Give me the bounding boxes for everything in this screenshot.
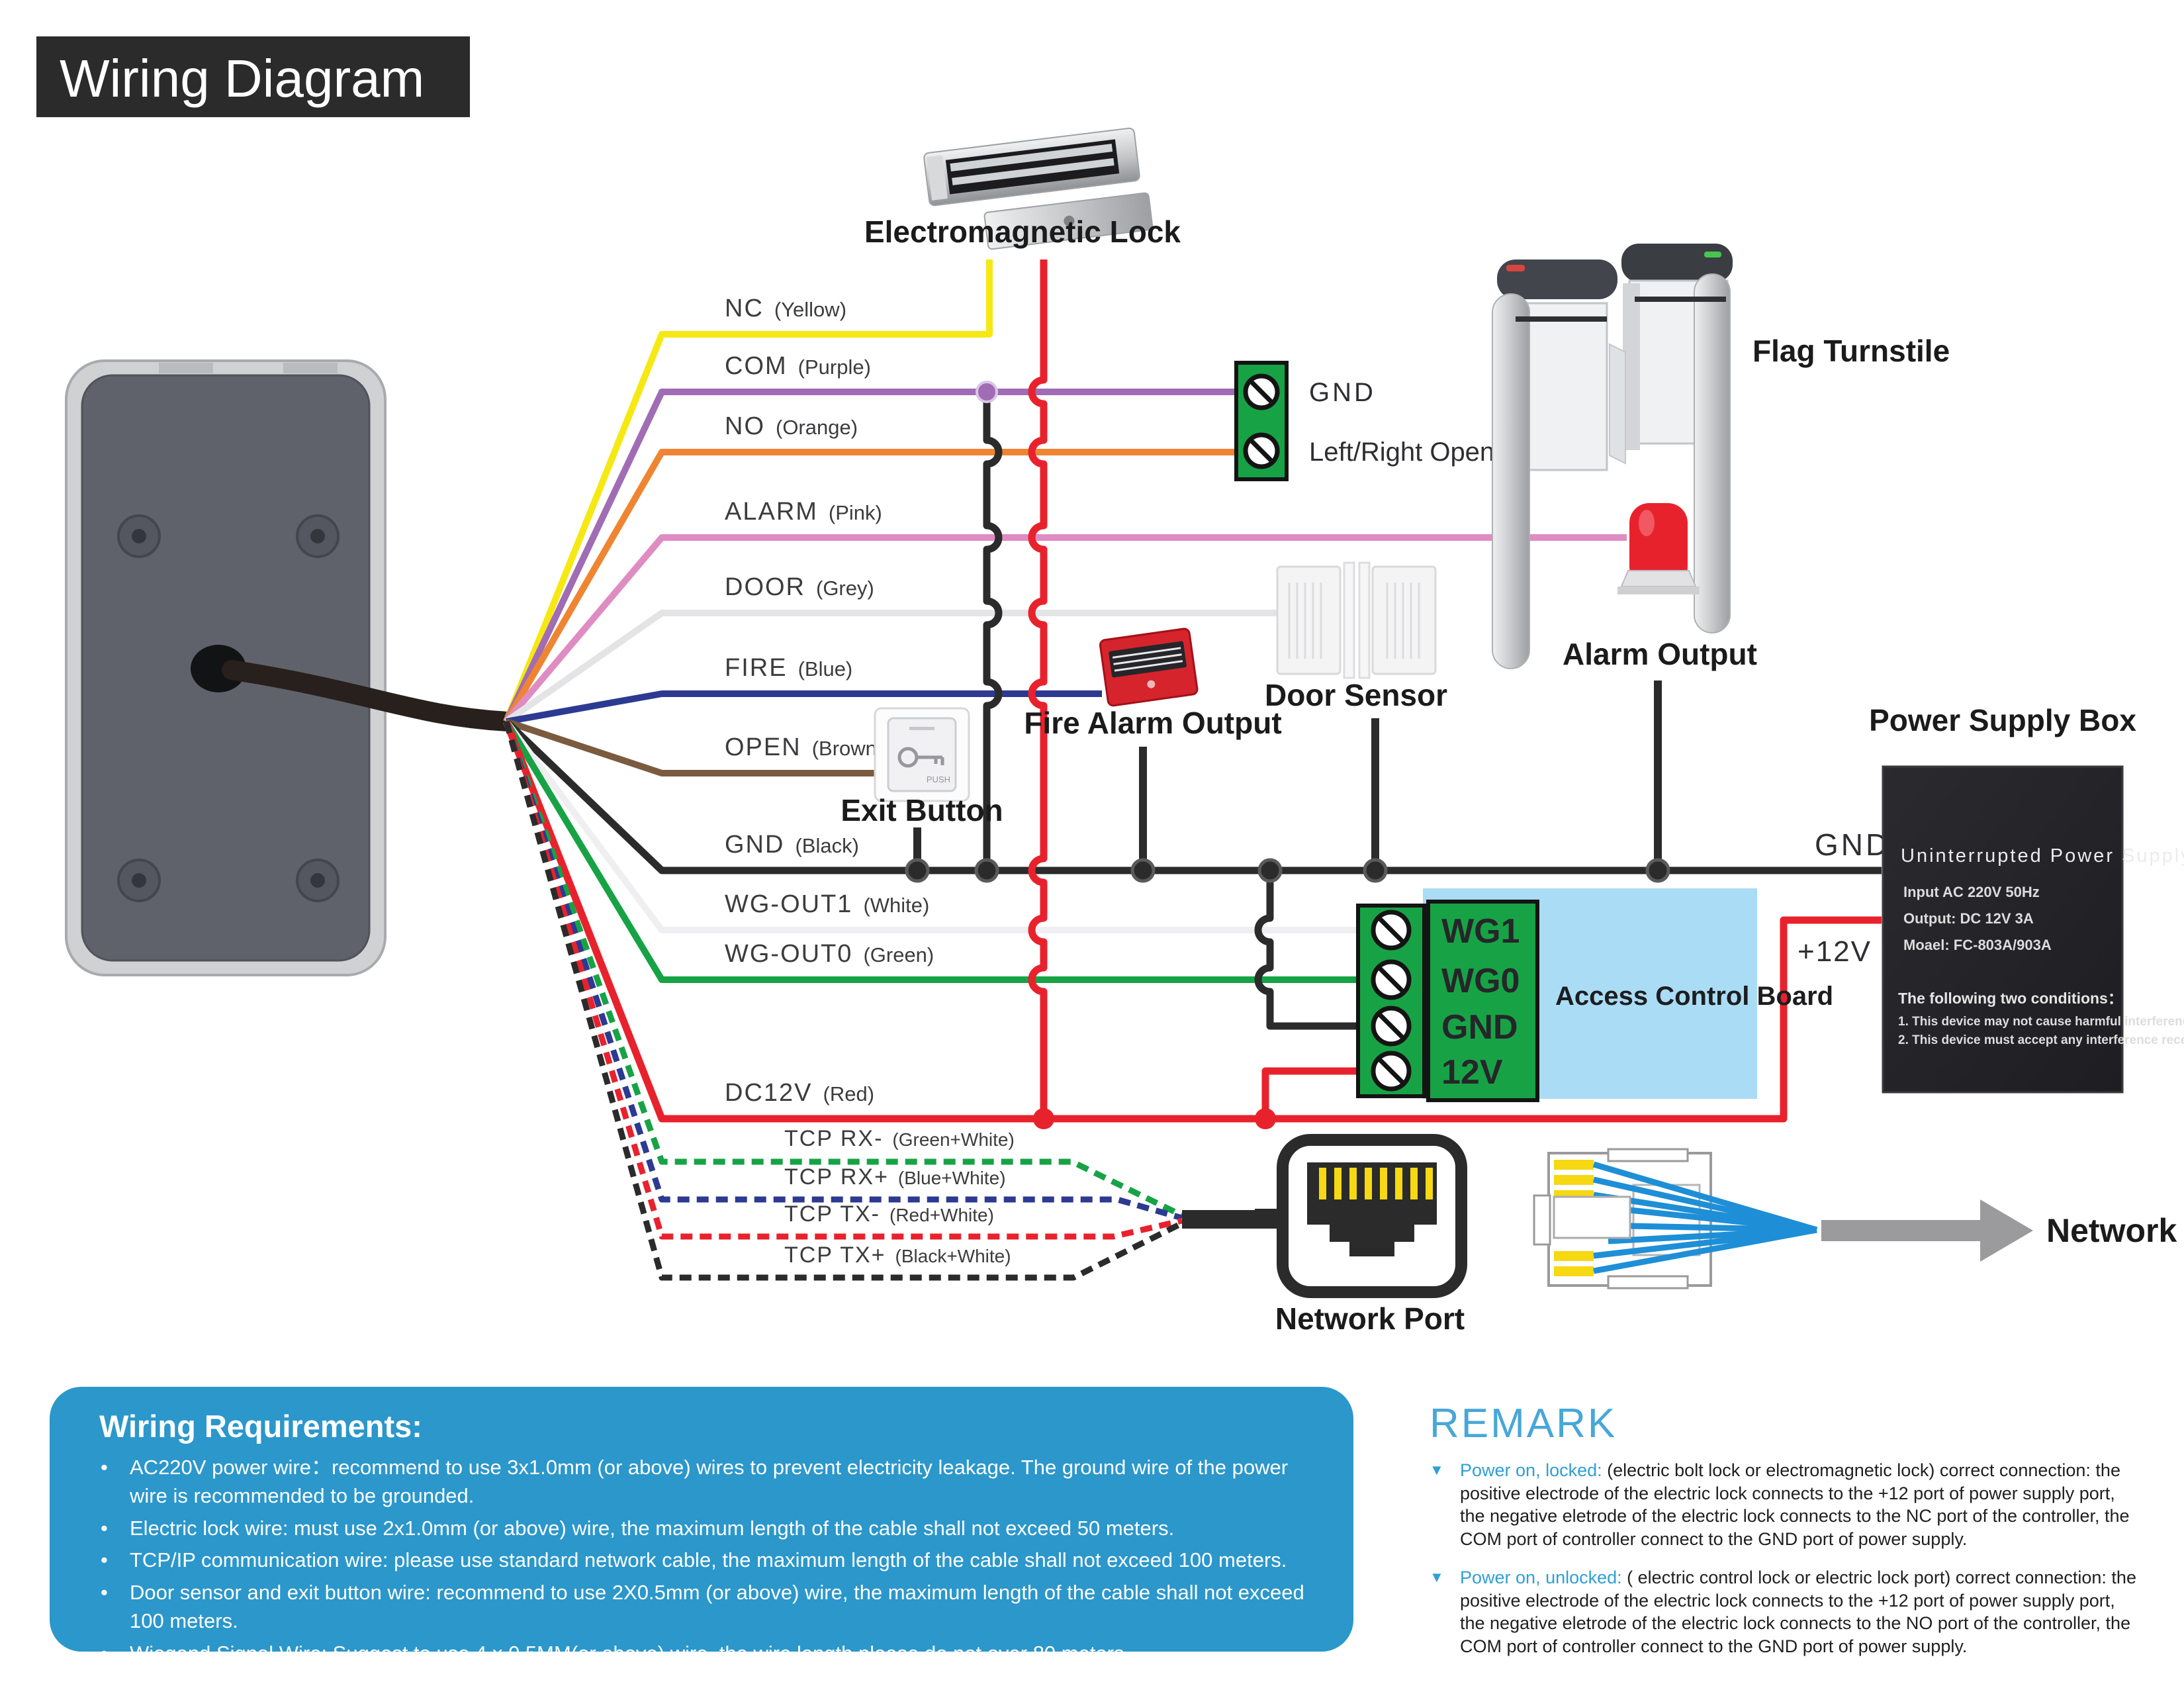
psu-model: Moael: FC-803A/903A [1903, 937, 2052, 953]
wire-label-nc: NC [725, 295, 764, 322]
fire-alarm-graphic: Fire Alarm Output [1024, 628, 1281, 740]
board-terminal-wg0: WG0 [1441, 962, 1520, 1000]
power-supply-box-label: Power Supply Box [1869, 703, 2136, 737]
psu-condition-2: 2. This device must accept any interfere… [1898, 1033, 2184, 1047]
board-terminal-12v: 12V [1441, 1053, 1503, 1092]
junction-dc12v-board [1255, 1108, 1276, 1129]
exit-button-label: Exit Button [841, 793, 1003, 827]
wire-fire [506, 694, 1102, 722]
access-control-board-label: Access Control Board [1555, 982, 1833, 1011]
door-sensor-label: Door Sensor [1265, 678, 1447, 712]
network-arrow-shaft [1821, 1220, 1980, 1241]
page-title: Wiring Diagram [60, 49, 424, 108]
svg-text:GND(Black): GND(Black) [725, 831, 859, 859]
requirement-item: Wiegand Signal Wire: Suggest to use 4 x … [126, 1640, 1314, 1668]
rj45-connector-graphic: Network [1534, 1149, 2177, 1288]
remark-lead: Power on, locked: [1460, 1460, 1602, 1480]
rj45-nose [1554, 1197, 1630, 1238]
junction-com [977, 382, 997, 402]
wire-12v-to-board [1265, 1071, 1358, 1119]
door-sensor-graphic: Door Sensor [1265, 563, 1447, 712]
fire-alarm-label: Fire Alarm Output [1024, 706, 1281, 740]
wire-gnd [506, 722, 1882, 870]
page-title-block: Wiring Diagram [36, 36, 470, 117]
svg-text:TCP TX-(Red+White): TCP TX-(Red+White) [784, 1201, 994, 1227]
electromagnetic-lock-label: Electromagnetic Lock [864, 214, 1181, 249]
flag-turnstile-graphic: Flag Turnstile [1492, 244, 1950, 669]
wire-label-wgout0: WG-OUT0 [725, 940, 852, 968]
wire-label-com: COM [725, 352, 788, 380]
push-label: PUSH [927, 774, 950, 784]
remark-title: REMARK [1430, 1400, 2144, 1447]
svg-text:FIRE(Blue): FIRE(Blue) [725, 654, 852, 682]
mount-tab [159, 363, 213, 373]
network-label: Network [2046, 1212, 2177, 1249]
svg-text:ALARM(Pink): ALARM(Pink) [725, 498, 882, 526]
remark-panel: REMARK Power on, locked: (electric bolt … [1430, 1400, 2144, 1673]
wire-label-open: OPEN [725, 733, 801, 761]
svg-text:WG-OUT1(White): WG-OUT1(White) [725, 890, 929, 918]
access-control-board: WG1 WG0 GND 12V Access Control Board [1358, 888, 1833, 1100]
power-supply-box: Power Supply Box GND +12V Uninterrupted … [1797, 703, 2184, 1092]
wire-label-fire: FIRE [725, 654, 788, 682]
svg-text:OPEN(Brown): OPEN(Brown) [725, 733, 884, 761]
remark-lead: Power on, unlocked: [1460, 1568, 1622, 1587]
network-port-label: Network Port [1275, 1301, 1465, 1336]
remark-item-unlocked: Power on, unlocked: ( electric control l… [1430, 1566, 2144, 1658]
svg-text:NC(Yellow): NC(Yellow) [725, 295, 846, 322]
wire-nc [506, 259, 989, 722]
wire-label-tcp-rx-minus: TCP RX- [784, 1126, 883, 1151]
wire-label-wgout1: WG-OUT1 [725, 890, 852, 918]
requirement-item: TCP/IP communication wire: please use st… [126, 1546, 1314, 1575]
wire-lock-to-12v [1032, 259, 1044, 1119]
svg-text:TCP RX-(Green+White): TCP RX-(Green+White) [784, 1126, 1015, 1151]
svg-text:DOOR(Grey): DOOR(Grey) [725, 573, 874, 601]
requirement-item: AC220V power wire：recommend to use 3x1.0… [126, 1454, 1314, 1511]
wire-label-tcp-tx-minus: TCP TX- [784, 1201, 880, 1227]
svg-text:DC12V(Red): DC12V(Red) [725, 1079, 874, 1107]
electromagnetic-lock-graphic: Electromagnetic Lock [864, 127, 1181, 256]
psu-condition-1: 1. This device may not cause harmful int… [1898, 1015, 2184, 1029]
psu-conditions-title: The following two conditions： [1898, 990, 2123, 1007]
remark-item-locked: Power on, locked: (electric bolt lock or… [1430, 1459, 2144, 1550]
flag-turnstile-label: Flag Turnstile [1752, 334, 1950, 368]
wire-label-door: DOOR [725, 573, 805, 601]
svg-text:TCP TX+(Black+White): TCP TX+(Black+White) [784, 1243, 1011, 1268]
psu-title: Uninterrupted Power Supply [1901, 845, 2184, 867]
access-reader-device [66, 361, 508, 975]
requirement-item: Electric lock wire: must use 2x1.0mm (or… [126, 1515, 1314, 1543]
wire-label-dc12v: DC12V [725, 1079, 813, 1107]
wire-label-no: NO [725, 412, 765, 440]
psu-output: Output: DC 12V 3A [1903, 910, 2034, 927]
terminal-gnd-label: GND [1309, 378, 1376, 407]
wiring-requirements-list: AC220V power wire：recommend to use 3x1.0… [99, 1454, 1314, 1667]
wiring-requirements-title: Wiring Requirements: [99, 1408, 1314, 1444]
wire-label-alarm: ALARM [725, 498, 818, 526]
board-terminal-gnd: GND [1441, 1008, 1518, 1047]
turnstile-terminal-block: GND Left/Right Open [1236, 363, 1494, 479]
wiring-requirements-panel: Wiring Requirements: AC220V power wire：r… [50, 1387, 1353, 1652]
wire-label-tcp-tx-plus: TCP TX+ [784, 1243, 886, 1268]
board-terminal-wg1: WG1 [1441, 912, 1520, 951]
wire-label-tcp-rx-plus: TCP RX+ [784, 1164, 889, 1190]
alarm-output-label: Alarm Output [1563, 637, 1757, 671]
svg-text:NO(Orange): NO(Orange) [725, 412, 858, 440]
psu-input: Input AC 220V 50Hz [1903, 884, 2040, 900]
wire-gnd-to-board [1258, 870, 1358, 1026]
svg-text:WG-OUT0(Green): WG-OUT0(Green) [725, 940, 934, 968]
junction-dc12v-lock [1033, 1108, 1054, 1129]
network-port-graphic: Network Port [1255, 1140, 1465, 1336]
wire-label-gnd: GND [725, 831, 784, 859]
plus12v-label: +12V [1797, 935, 1872, 968]
exit-button-graphic: PUSH Exit Button [841, 708, 1003, 827]
mount-tab [283, 363, 338, 373]
requirement-item: Door sensor and exit button wire: recomm… [126, 1579, 1314, 1636]
network-arrow-head [1980, 1199, 2033, 1262]
terminal-open-label: Left/Right Open [1309, 438, 1494, 467]
svg-text:COM(Purple): COM(Purple) [725, 352, 871, 380]
svg-text:TCP RX+(Blue+White): TCP RX+(Blue+White) [784, 1164, 1006, 1190]
gnd-right-label: GND [1815, 827, 1890, 862]
